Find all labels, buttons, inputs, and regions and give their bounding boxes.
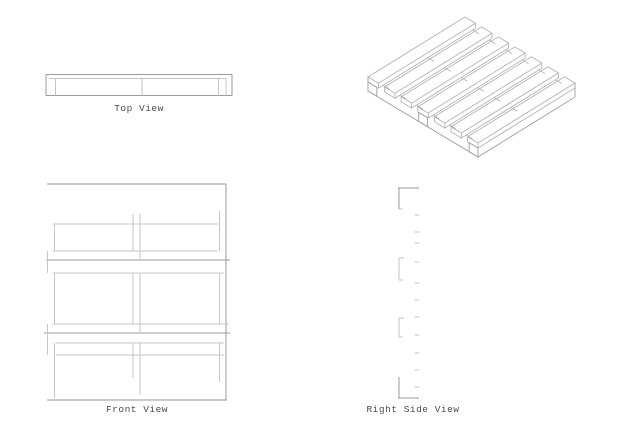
pallet-multiview-svg: Top View Front View Right Side View [0,0,620,439]
top-view-outline [46,75,232,96]
drawing-canvas: Top View Front View Right Side View [0,0,620,439]
front-view-drawing: Front View [44,184,230,415]
iso-deck-board [434,57,541,128]
top-view-drawing: Top View [46,75,232,115]
iso-deck-board [368,17,475,88]
front-view-main-lines [44,184,230,400]
right-side-board-edge-dashes [415,215,420,387]
top-view-inner-lines [49,79,226,96]
iso-stringer-end-blocks [368,82,478,157]
isometric-view-drawing [368,17,575,157]
iso-deck-board [468,77,575,148]
front-view-stringer-lines [48,211,220,398]
iso-bottom-outline [368,77,575,157]
iso-deck-board [401,37,508,108]
right-side-view-label: Right Side View [366,404,459,415]
iso-deck-board [451,67,558,138]
iso-deck-board [418,47,525,118]
right-side-view-drawing: Right Side View [366,188,459,415]
iso-deck-board [385,27,492,98]
front-view-label: Front View [106,404,168,415]
top-view-label: Top View [114,103,164,114]
right-side-stringer-segments [399,209,404,337]
right-side-outline [398,188,419,398]
